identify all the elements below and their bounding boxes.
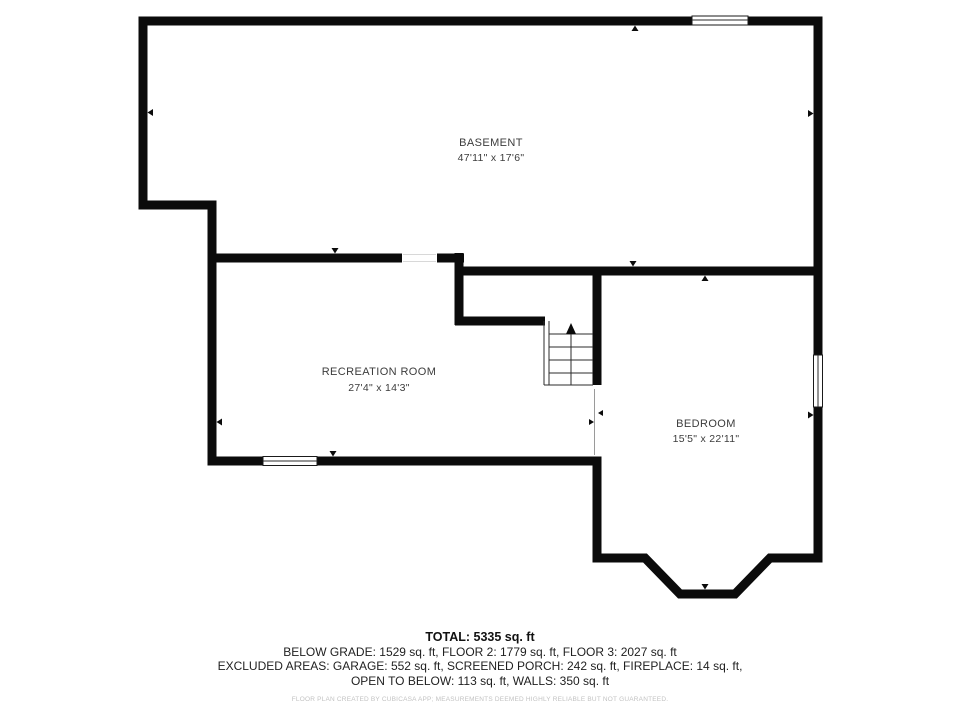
room-dimensions-recreation-room: 27'4" x 14'3": [348, 382, 410, 394]
disclaimer-text: FLOOR PLAN CREATED BY CUBICASA APP; MEAS…: [0, 696, 960, 703]
stairs-up-arrow-icon: [566, 323, 576, 334]
opening-arrow-icon: [589, 419, 594, 425]
wall-tick-icon: [217, 419, 223, 426]
floor-areas-text: BELOW GRADE: 1529 sq. ft, FLOOR 2: 1779 …: [0, 645, 960, 660]
room-dimensions-basement: 47'11" x 17'6": [458, 152, 525, 164]
door-opening: [403, 255, 436, 262]
room-name-basement: BASEMENT: [459, 137, 523, 149]
floor-plan-page: BASEMENT 47'11" x 17'6" RECREATION ROOM …: [0, 0, 960, 720]
opening-arrow-icon: [598, 410, 603, 416]
area-summary: TOTAL: 5335 sq. ft BELOW GRADE: 1529 sq.…: [0, 630, 960, 688]
windows: [263, 16, 823, 466]
bedroom-entry-opening: [589, 389, 603, 455]
excluded-areas-text-continued: OPEN TO BELOW: 113 sq. ft, WALLS: 350 sq…: [0, 674, 960, 689]
wall-tick-icon: [332, 248, 339, 254]
room-name-recreation-room: RECREATION ROOM: [322, 366, 437, 378]
total-area-text: TOTAL: 5335 sq. ft: [0, 630, 960, 645]
room-labels: BASEMENT 47'11" x 17'6" RECREATION ROOM …: [322, 137, 740, 445]
staircase: [544, 321, 593, 385]
room-name-bedroom: BEDROOM: [676, 418, 736, 430]
wall-tick-icon: [808, 412, 814, 419]
window-rec-room-bottom: [263, 457, 317, 466]
wall-tick-marks: [148, 26, 814, 590]
window-top-wall: [692, 16, 748, 25]
wall-tick-icon: [808, 110, 814, 117]
wall-tick-icon: [630, 261, 637, 267]
wall-tick-icon: [702, 276, 709, 282]
room-dimensions-bedroom: 15'5" x 22'11": [673, 433, 740, 445]
wall-tick-icon: [702, 584, 709, 590]
floor-plan-canvas: BASEMENT 47'11" x 17'6" RECREATION ROOM …: [0, 0, 960, 720]
window-bedroom-right: [814, 355, 823, 407]
wall-tick-icon: [148, 109, 154, 116]
wall-tick-icon: [632, 26, 639, 32]
outer-wall-outline: [143, 21, 818, 594]
excluded-areas-text: EXCLUDED AREAS: GARAGE: 552 sq. ft, SCRE…: [0, 659, 960, 674]
walls: [143, 21, 818, 594]
wall-tick-icon: [330, 451, 337, 457]
